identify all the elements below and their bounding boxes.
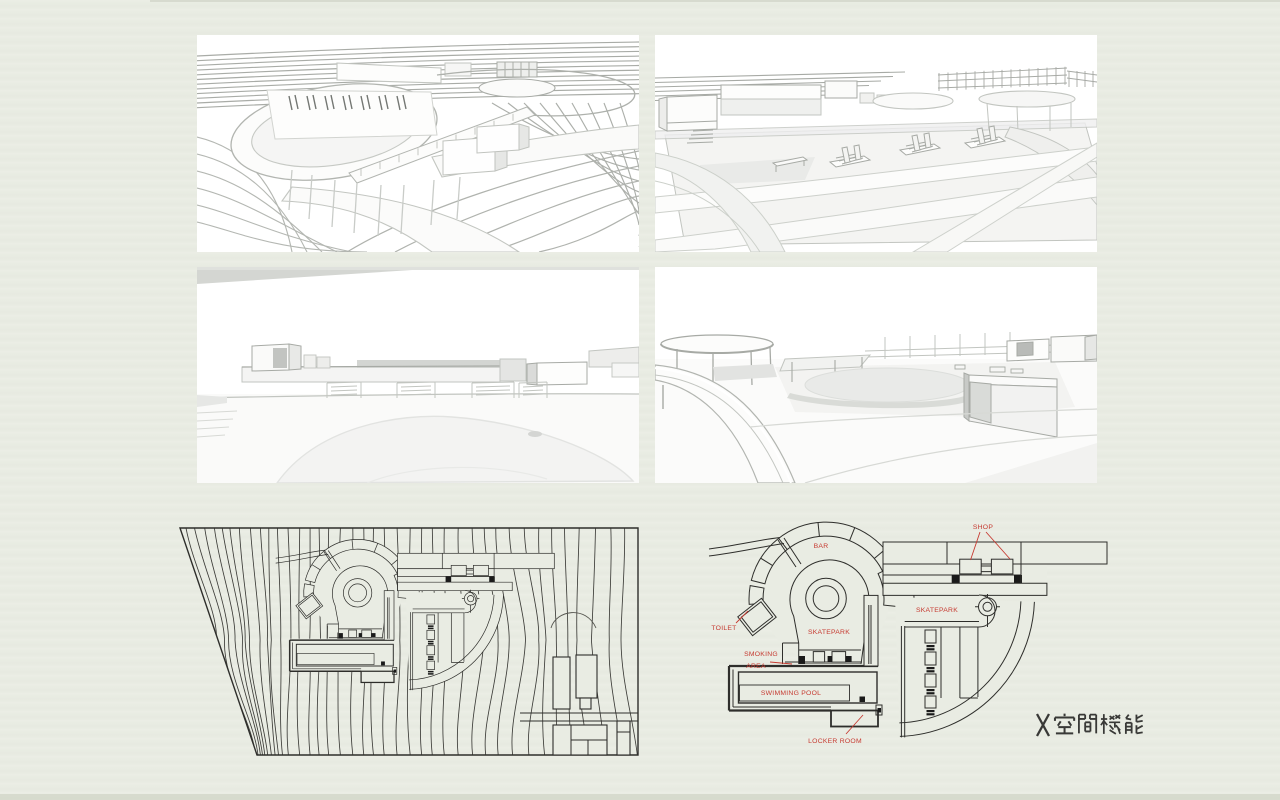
svg-text:SKATEPARK: SKATEPARK: [808, 629, 850, 636]
svg-text:AREA: AREA: [746, 663, 766, 670]
svg-text:SWIMMING POOL: SWIMMING POOL: [761, 690, 821, 697]
svg-text:SKATEPARK: SKATEPARK: [916, 607, 958, 614]
svg-text:SHOP: SHOP: [973, 524, 993, 531]
svg-text:SMOKING: SMOKING: [744, 651, 778, 658]
svg-text:LOCKER ROOM: LOCKER ROOM: [808, 738, 862, 745]
svg-text:TOILET: TOILET: [711, 625, 736, 632]
svg-text:BAR: BAR: [814, 543, 829, 550]
